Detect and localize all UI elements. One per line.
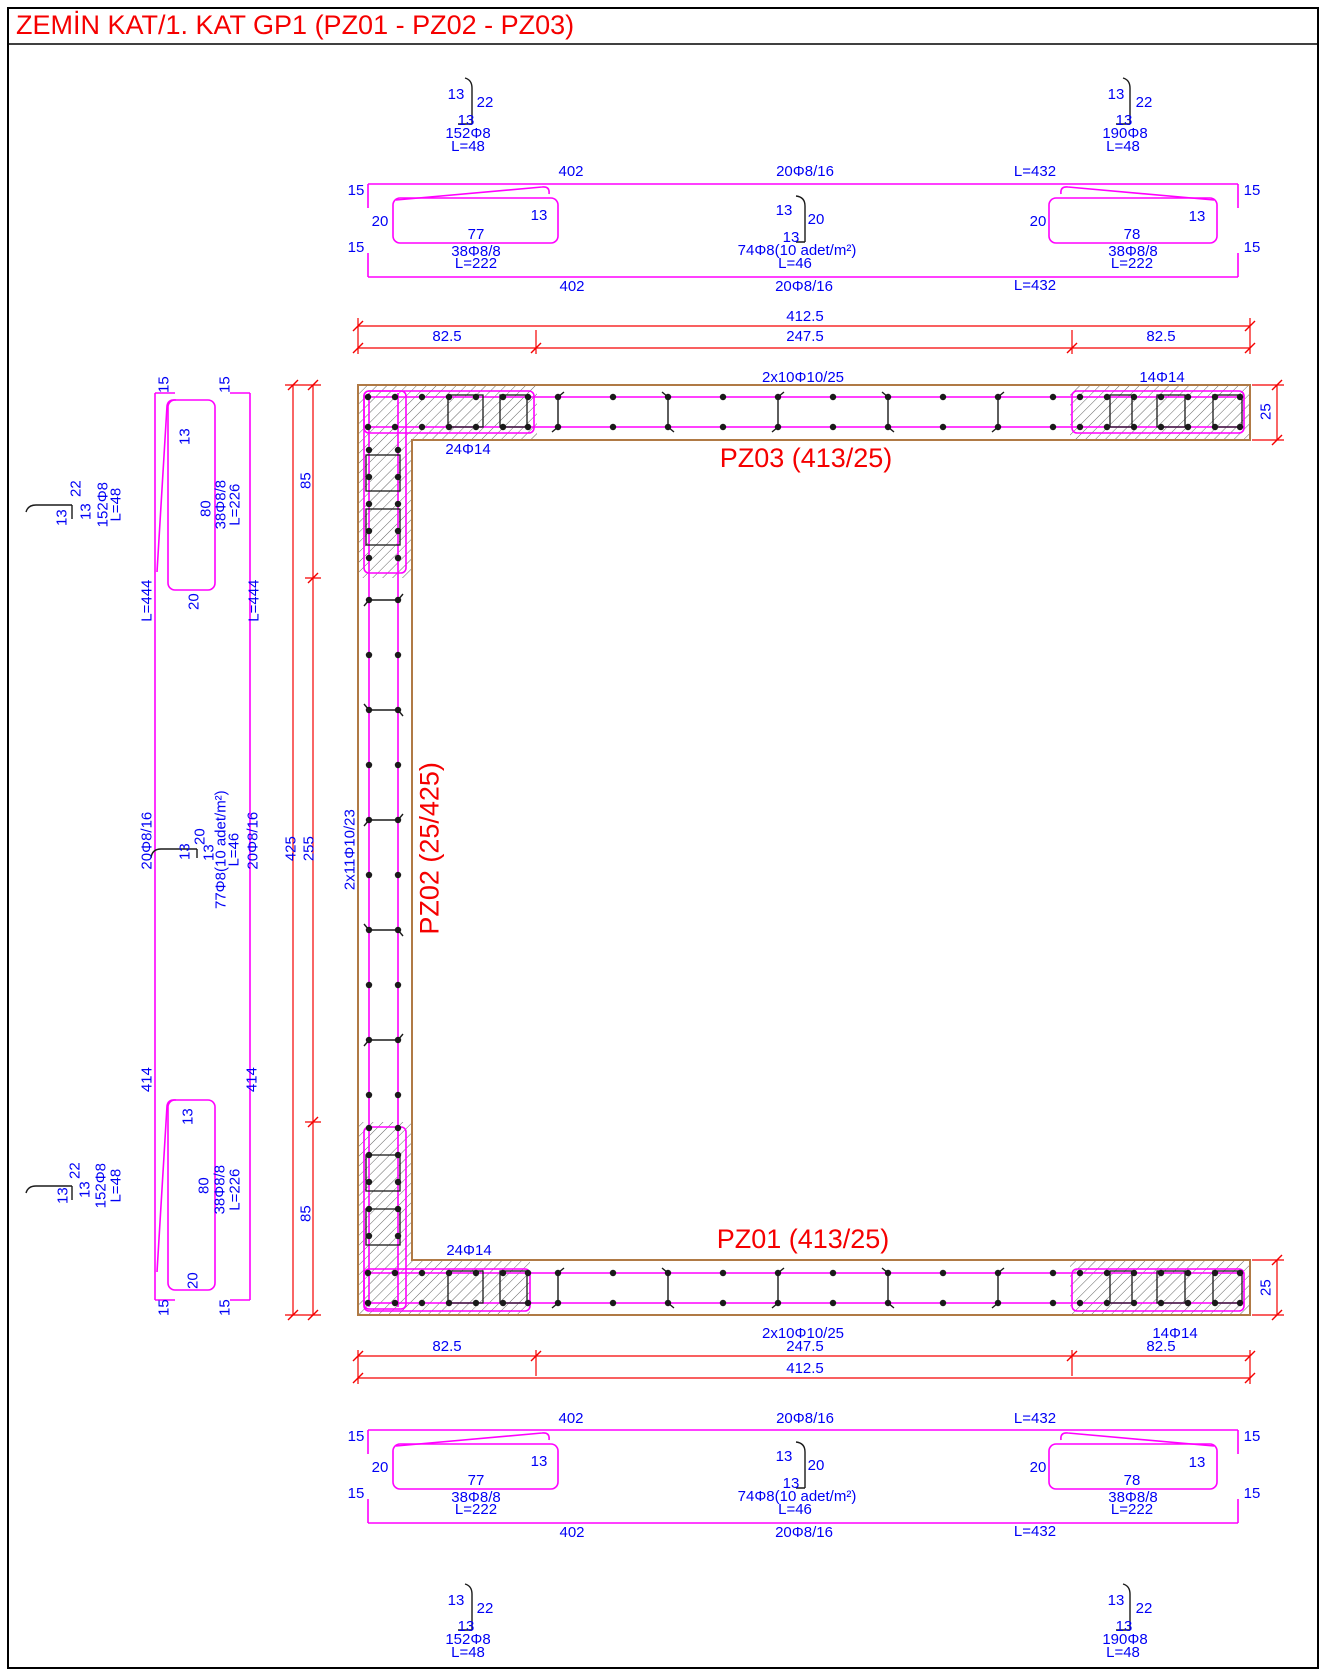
label-details-hook_len: 15 xyxy=(156,376,173,393)
drawing-mark xyxy=(772,392,784,432)
label-details-bend: 13 xyxy=(54,509,71,526)
rebar-dot xyxy=(366,652,372,658)
label-details-tie190-len: L=48 xyxy=(1106,1644,1140,1661)
label-details-stirrup77-len: L=222 xyxy=(455,1501,497,1518)
label-details-bar2016: 20Φ8/16 xyxy=(776,1410,834,1427)
drawing-mark xyxy=(364,924,403,936)
rebar-dot xyxy=(419,394,425,400)
rebar-dot xyxy=(366,982,372,988)
label-details-leg: 20 xyxy=(1030,1459,1047,1476)
label-details-hook_len: 15 xyxy=(348,1485,365,1502)
label-details-tail: 22 xyxy=(67,1162,84,1179)
rebar-dot xyxy=(830,1300,836,1306)
label-walls-pz01-thk: 25 xyxy=(1258,1279,1275,1296)
label-details-tie152-len: L=48 xyxy=(108,488,125,522)
label-details-bend: 13 xyxy=(1108,86,1125,103)
rebar-dot xyxy=(365,1270,371,1276)
rebar-dot xyxy=(610,424,616,430)
drawing-mark xyxy=(662,1268,674,1308)
label-details-stirrup77-width: 77 xyxy=(468,226,485,243)
label-details-bar402: 402 xyxy=(558,1410,583,1427)
rebar-dot xyxy=(395,872,401,878)
label-details-bar432: L=432 xyxy=(1014,277,1056,294)
label-walls-pz03-thk: 25 xyxy=(1258,403,1275,420)
rebar-dot xyxy=(366,1092,372,1098)
rebar-dot xyxy=(366,528,372,534)
label-details-leg: 20 xyxy=(192,828,209,845)
label-details-bar2016: 20Φ8/16 xyxy=(775,1524,833,1541)
label-details-tail: 22 xyxy=(68,480,85,497)
label-details-bend: 13 xyxy=(180,1108,197,1125)
label-dims-total: 412.5 xyxy=(786,1360,824,1377)
label-details-stirrup78-len: L=222 xyxy=(1111,1501,1153,1518)
label-details-tie190-len: L=48 xyxy=(1106,138,1140,155)
rebar-dot xyxy=(395,982,401,988)
label-details-leg: 20 xyxy=(1030,213,1047,230)
rebar-dot xyxy=(940,394,946,400)
rebar-dot xyxy=(720,1270,726,1276)
label-details-bend: 13 xyxy=(448,1592,465,1609)
label-walls-pz03-web: 2x10Φ10/25 xyxy=(762,369,844,386)
rebar-dot xyxy=(610,394,616,400)
label-details-bend: 13 xyxy=(531,207,548,224)
rebar-dot xyxy=(366,1179,372,1185)
label-details-bend: 13 xyxy=(77,1181,94,1198)
rebar-dot xyxy=(366,762,372,768)
label-details-hook_len: 15 xyxy=(348,239,365,256)
label-details-stirrup77-len: L=222 xyxy=(455,255,497,272)
label-dims-v_end: 85 xyxy=(298,1205,315,1222)
rebar-dot xyxy=(395,447,401,453)
label-details-tail: 22 xyxy=(1136,94,1153,111)
rebar-dot xyxy=(830,424,836,430)
rebar-dot xyxy=(366,872,372,878)
rebar-dot xyxy=(395,1125,401,1131)
label-walls-pz02-web: 2x11Φ10/23 xyxy=(342,809,359,890)
label-walls-pz03-corner: 24Φ14 xyxy=(445,441,490,458)
label-details-stirrup77-width: 77 xyxy=(468,1472,485,1489)
label-details-tail: 22 xyxy=(1136,1600,1153,1617)
drawing-mark xyxy=(364,704,403,716)
rebar-dot xyxy=(940,1270,946,1276)
label-details-bend: 13 xyxy=(776,202,793,219)
cad-sheet: ZEMİN KAT/1. KAT GP1 (PZ01 - PZ02 - PZ03… xyxy=(0,0,1327,1676)
drawing-mark xyxy=(364,814,403,826)
rebar-dot xyxy=(365,394,371,400)
rebar-dot xyxy=(366,501,372,507)
label-dims-mid: 247.5 xyxy=(786,328,824,345)
rebar-dot xyxy=(1050,424,1056,430)
rebar-dot xyxy=(1050,1270,1056,1276)
rebar-dot xyxy=(940,1300,946,1306)
label-details-leg: 20 xyxy=(808,1457,825,1474)
rebar-dot xyxy=(366,447,372,453)
rebar-dot xyxy=(1104,394,1110,400)
label-details-hook_len: 15 xyxy=(1244,1485,1261,1502)
rebar-dot xyxy=(720,424,726,430)
rebar-dot xyxy=(395,762,401,768)
label-dims-end: 82.5 xyxy=(1146,328,1175,345)
drawing-mark xyxy=(992,392,1004,432)
rebar-dot xyxy=(1185,1300,1191,1306)
drawing-mark xyxy=(552,392,564,432)
label-details-bar402: 402 xyxy=(559,278,584,295)
label-details-tail: 22 xyxy=(477,94,494,111)
label-details-bend: 13 xyxy=(177,428,194,445)
label-details-stirrup80-width: 80 xyxy=(196,1177,213,1194)
label-details-hook_len: 15 xyxy=(217,1299,234,1316)
label-details-bend: 13 xyxy=(1108,1592,1125,1609)
label-details-web77-len: L=46 xyxy=(226,833,243,867)
rebar-dot xyxy=(1077,424,1083,430)
rebar-dot xyxy=(395,1092,401,1098)
rebar-dot xyxy=(610,1300,616,1306)
drawing-mark xyxy=(364,594,403,606)
rebar-dot xyxy=(392,1270,398,1276)
label-details-hook_len: 15 xyxy=(1244,239,1261,256)
label-walls-pz03-name: PZ03 (413/25) xyxy=(720,443,893,474)
label-details-bar2016: 20Φ8/16 xyxy=(776,163,834,180)
label-walls-pz02-name: PZ02 (25/425) xyxy=(415,762,446,935)
label-details-leg: 20 xyxy=(808,211,825,228)
rebar-dot xyxy=(1185,394,1191,400)
label-details-bend: 13 xyxy=(177,843,194,860)
label-details-web74-len: L=46 xyxy=(778,255,812,272)
label-dims-end: 82.5 xyxy=(432,1338,461,1355)
rebar-dot xyxy=(830,1270,836,1276)
label-details-bend: 13 xyxy=(448,86,465,103)
label-details-hook_len: 15 xyxy=(217,376,234,393)
wall-end-zone-hatch xyxy=(358,385,1250,1315)
rebar-dot xyxy=(720,394,726,400)
label-walls-pz01-name: PZ01 (413/25) xyxy=(717,1224,890,1255)
drawing-mark xyxy=(772,1268,784,1308)
rebar-dot xyxy=(365,1300,371,1306)
label-details-bend: 13 xyxy=(1189,208,1206,225)
rebar-dot xyxy=(366,555,372,561)
label-details-stirrup78-len: L=222 xyxy=(1111,255,1153,272)
label-details-bar444: L=444 xyxy=(246,580,263,622)
label-details-web74-len: L=46 xyxy=(778,1501,812,1518)
wall-outline xyxy=(358,385,1250,1315)
label-details-bar414: 414 xyxy=(139,1067,156,1092)
rebar-dot xyxy=(1104,424,1110,430)
label-details-bend: 13 xyxy=(531,1453,548,1470)
rebar-dot xyxy=(392,1300,398,1306)
rebar-dot xyxy=(395,652,401,658)
drawing-mark xyxy=(552,1268,564,1308)
label-details-leg: 20 xyxy=(186,593,203,610)
rebar-dot xyxy=(366,474,372,480)
label-details-leg: 20 xyxy=(372,213,389,230)
label-details-hook_len: 15 xyxy=(1244,1428,1261,1445)
label-details-tie152-len: L=48 xyxy=(451,1644,485,1661)
rebar-dot xyxy=(366,1233,372,1239)
label-dims-end: 82.5 xyxy=(432,328,461,345)
rebar-dot xyxy=(419,424,425,430)
rebar-dot xyxy=(392,394,398,400)
rebar-dot xyxy=(720,1300,726,1306)
rebar-dot xyxy=(395,501,401,507)
wall-rebar-lines xyxy=(364,391,1244,1311)
rebar-dot xyxy=(395,555,401,561)
rebar-dot xyxy=(366,1125,372,1131)
label-details-bar432: L=432 xyxy=(1014,1410,1056,1427)
rebar-dot xyxy=(1050,1300,1056,1306)
rebar-dot xyxy=(610,1270,616,1276)
label-details-leg: 20 xyxy=(372,1459,389,1476)
label-details-hook_len: 15 xyxy=(348,1428,365,1445)
rebar-dot xyxy=(1104,1270,1110,1276)
label-details-bar414: 414 xyxy=(244,1067,261,1092)
label-dims-v_mid: 255 xyxy=(301,836,318,861)
label-details-bar2016: 20Φ8/16 xyxy=(139,812,156,870)
drawing-mark xyxy=(662,392,674,432)
label-details-bend: 13 xyxy=(1189,1454,1206,1471)
label-details-bar402: 402 xyxy=(559,1524,584,1541)
label-details-tie152-len: L=48 xyxy=(108,1169,125,1203)
label-details-bend: 13 xyxy=(776,1448,793,1465)
rebar-dot xyxy=(1185,424,1191,430)
label-details-bend: 13 xyxy=(78,503,95,520)
label-walls-pz01-corner: 24Φ14 xyxy=(446,1242,491,1259)
rebar-dot xyxy=(1050,394,1056,400)
label-details-stirrup78-width: 78 xyxy=(1124,226,1141,243)
drawing-mark xyxy=(992,1268,1004,1308)
label-walls-pz03-end: 14Φ14 xyxy=(1139,369,1184,386)
label-details-bar402: 402 xyxy=(558,163,583,180)
label-details-bar2016: 20Φ8/16 xyxy=(775,278,833,295)
label-details-bar432: L=432 xyxy=(1014,163,1056,180)
label-dims-mid: 247.5 xyxy=(786,1338,824,1355)
rebar-dot xyxy=(419,1300,425,1306)
rebar-dot xyxy=(419,1270,425,1276)
label-details-tie152-len: L=48 xyxy=(451,138,485,155)
label-dims-end: 82.5 xyxy=(1146,1338,1175,1355)
rebar-dot xyxy=(392,424,398,430)
label-details-bar432: L=432 xyxy=(1014,1523,1056,1540)
rebar-dot xyxy=(365,424,371,430)
label-details-bar2016: 20Φ8/16 xyxy=(245,812,262,870)
label-details-hook_len: 15 xyxy=(1244,182,1261,199)
label-details-stirrup80-len: L=226 xyxy=(227,1169,244,1211)
label-details-hook_len: 15 xyxy=(348,182,365,199)
drawing-mark xyxy=(882,1268,894,1308)
rebar-dot xyxy=(830,394,836,400)
drawing-mark xyxy=(364,1034,403,1046)
label-details-hook_len: 15 xyxy=(156,1299,173,1316)
label-details-stirrup78-width: 78 xyxy=(1124,1472,1141,1489)
rebar-dot xyxy=(1077,1270,1083,1276)
sheet-title: ZEMİN KAT/1. KAT GP1 (PZ01 - PZ02 - PZ03… xyxy=(16,10,574,41)
rebar-dot xyxy=(1077,394,1083,400)
drawing-mark xyxy=(882,392,894,432)
label-details-tail: 22 xyxy=(477,1600,494,1617)
label-dims-total: 412.5 xyxy=(786,308,824,325)
label-dims-v_end: 85 xyxy=(298,472,315,489)
label-dims-v_total: 425 xyxy=(283,836,300,861)
rebar-dot xyxy=(940,424,946,430)
rebar-dot xyxy=(1077,1300,1083,1306)
rebar-dot xyxy=(1185,1270,1191,1276)
rebar-dot xyxy=(1104,1300,1110,1306)
label-details-stirrup80-len: L=226 xyxy=(227,484,244,526)
label-details-bar444: L=444 xyxy=(139,580,156,622)
label-details-leg: 20 xyxy=(185,1272,202,1289)
label-details-bend: 13 xyxy=(55,1187,72,1204)
